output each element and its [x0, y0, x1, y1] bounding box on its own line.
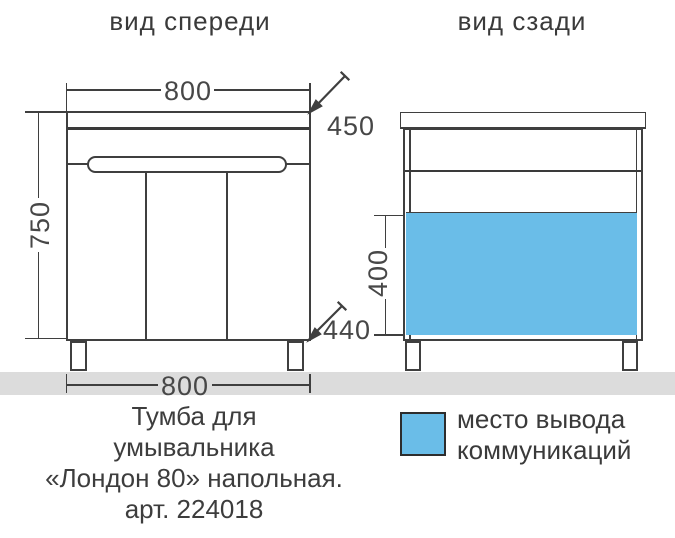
product-caption: Тумба для умывальника «Лондон 80» наполь…	[20, 401, 368, 525]
caption-line-3: «Лондон 80» напольная.	[20, 463, 368, 494]
depth-bottom-arrow-tail-tick	[338, 302, 347, 310]
front-dim-depth-top-label: 450	[320, 111, 382, 142]
front-door-divider-right	[226, 172, 229, 340]
depth-top-arrow-line	[312, 76, 345, 110]
front-dim-bottom-line-a	[66, 384, 158, 386]
back-communications-cutout-area	[406, 212, 637, 335]
back-leg-right	[622, 341, 638, 371]
front-leg-right	[287, 341, 304, 371]
front-dim-top-line-b	[214, 89, 310, 91]
front-leg-left	[70, 341, 87, 371]
back-dim-ext-top	[374, 215, 404, 217]
product-dimension-diagram: вид спереди вид сзади 800 750 800 450 44…	[0, 0, 675, 538]
front-cabinet-outline	[66, 111, 311, 341]
legend-label: место вывода коммуникаций	[457, 404, 631, 466]
front-handle	[87, 156, 287, 173]
front-dim-top-tick-right	[309, 83, 311, 113]
front-dim-height-label: 750	[25, 195, 53, 255]
legend-label-line-1: место вывода	[457, 404, 631, 435]
back-dim-cutout-height-label: 400	[363, 243, 391, 303]
legend-label-line-2: коммуникаций	[457, 435, 631, 466]
back-dim-ext-bottom	[374, 334, 404, 336]
legend-cutout-swatch	[400, 412, 446, 456]
front-door-divider-left	[145, 172, 148, 340]
front-dim-top-line-a	[66, 89, 161, 91]
front-dim-height-ext-top	[25, 111, 66, 113]
caption-line-1: Тумба для	[20, 401, 368, 432]
front-dim-height-line-b	[38, 252, 40, 338]
front-dim-top-tick-left	[66, 83, 68, 113]
front-view-title: вид спереди	[60, 6, 320, 37]
front-handle-connector-right	[285, 163, 310, 165]
back-shelf-line	[405, 170, 641, 172]
depth-top-arrow-tail-tick	[341, 72, 350, 80]
front-dim-height-ext-bottom	[25, 338, 66, 340]
back-countertop	[400, 112, 646, 129]
caption-line-4: арт. 224018	[20, 494, 368, 525]
front-dim-bottom-line-b	[212, 384, 310, 386]
front-dim-width-top-label: 800	[158, 76, 218, 107]
front-dim-width-bottom-label: 800	[155, 371, 215, 402]
back-dim-line-b	[385, 299, 387, 335]
back-view-title: вид сзади	[392, 6, 652, 37]
front-dim-height-line-a	[38, 112, 40, 198]
caption-line-2: умывальника	[20, 432, 368, 463]
front-handle-connector-left	[66, 163, 89, 165]
back-leg-left	[405, 341, 421, 371]
front-dim-depth-bottom-label: 440	[316, 315, 378, 346]
front-countertop-line	[68, 127, 309, 130]
